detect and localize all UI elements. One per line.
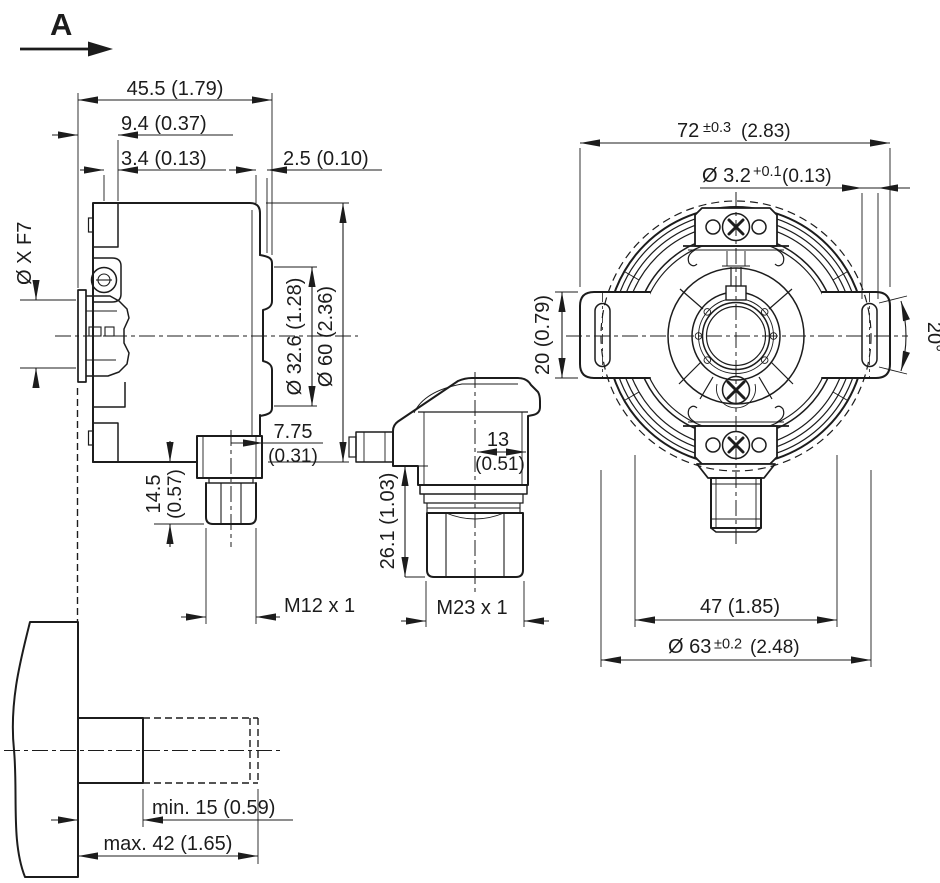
- connector-view: 13 (0.51) 26.1 (1.03) M23 x 1: [349, 372, 549, 627]
- dim-slot-width-tol: +0.1: [753, 164, 782, 180]
- mounting-wall: [13, 622, 78, 877]
- view-direction-label: A: [20, 7, 113, 57]
- view-label-text: A: [50, 7, 72, 42]
- dim-hollow-shaft-bore: Ø X F7: [14, 222, 36, 285]
- front-view: 72 ±0.3 (2.83) Ø 3.2 +0.1 (0.13) 20 (0.7…: [532, 120, 940, 667]
- dim-flange-dia-mm: Ø 63: [668, 636, 711, 658]
- dim-slot-angle: 20°: [923, 322, 940, 352]
- shaft-view-dimensions: min. 15 (0.59) max. 42 (1.65): [51, 789, 293, 864]
- dim-m23-thread: M23 x 1: [436, 597, 507, 619]
- shaft-mounting-view: min. 15 (0.59) max. 42 (1.65): [4, 622, 293, 877]
- dim-lateral-offset-in: (0.51): [475, 454, 525, 475]
- left-mounting-ear: [580, 292, 650, 378]
- drawing-page: A: [0, 0, 940, 883]
- dim-clamp-ring-dia: Ø 32.6 (1.28): [284, 278, 306, 396]
- dim-lateral-offset-mm: 13: [487, 429, 509, 451]
- dim-rear-lip: 2.5 (0.10): [283, 148, 369, 170]
- dim-flange-dia-in: (2.48): [750, 637, 800, 658]
- m23-coupling-nut: [420, 485, 527, 577]
- encoder-body-outline: [89, 203, 273, 462]
- dim-step-width: 3.4 (0.13): [121, 148, 207, 170]
- dim-m23-length: 26.1 (1.03): [377, 473, 399, 570]
- dim-insertion-max: max. 42 (1.65): [104, 833, 233, 855]
- technical-drawing: A: [0, 0, 940, 883]
- dim-slot-width-in: (0.13): [782, 166, 832, 187]
- dim-stator-width-mm: 72: [677, 120, 699, 142]
- dim-stator-width-tol: ±0.3: [703, 120, 731, 136]
- dim-m12-thread: M12 x 1: [284, 595, 355, 617]
- view-direction-arrowhead: [88, 42, 113, 57]
- right-mounting-ear: [822, 292, 890, 378]
- m12-connector: [197, 436, 262, 524]
- dim-conn-length-in: (0.57): [165, 469, 186, 519]
- dim-insertion-min: min. 15 (0.59): [152, 797, 275, 819]
- hub-and-shaft: [668, 251, 804, 408]
- dim-tab-width: 20 (0.79): [532, 295, 554, 375]
- dim-stator-width-in: (2.83): [741, 121, 791, 142]
- dim-depth-total: 45.5 (1.79): [127, 78, 224, 100]
- dim-connector-width: 47 (1.85): [700, 596, 780, 618]
- dim-flange-dia-tol: ±0.2: [714, 637, 742, 653]
- dim-conn-offset-mm: 7.75: [274, 421, 313, 443]
- dim-conn-offset-in: (0.31): [268, 446, 318, 467]
- side-view-dimensions: 45.5 (1.79) 9.4 (0.37) 3.4 (0.13) 2.5 (0…: [14, 78, 382, 624]
- dim-slot-width-dia: Ø 3.2: [702, 165, 751, 187]
- dim-front-offset: 9.4 (0.37): [121, 113, 207, 135]
- dim-conn-length-mm: 14.5: [143, 475, 165, 514]
- side-view: 45.5 (1.79) 9.4 (0.37) 3.4 (0.13) 2.5 (0…: [14, 78, 382, 624]
- dim-housing-dia: Ø 60 (2.36): [315, 286, 337, 387]
